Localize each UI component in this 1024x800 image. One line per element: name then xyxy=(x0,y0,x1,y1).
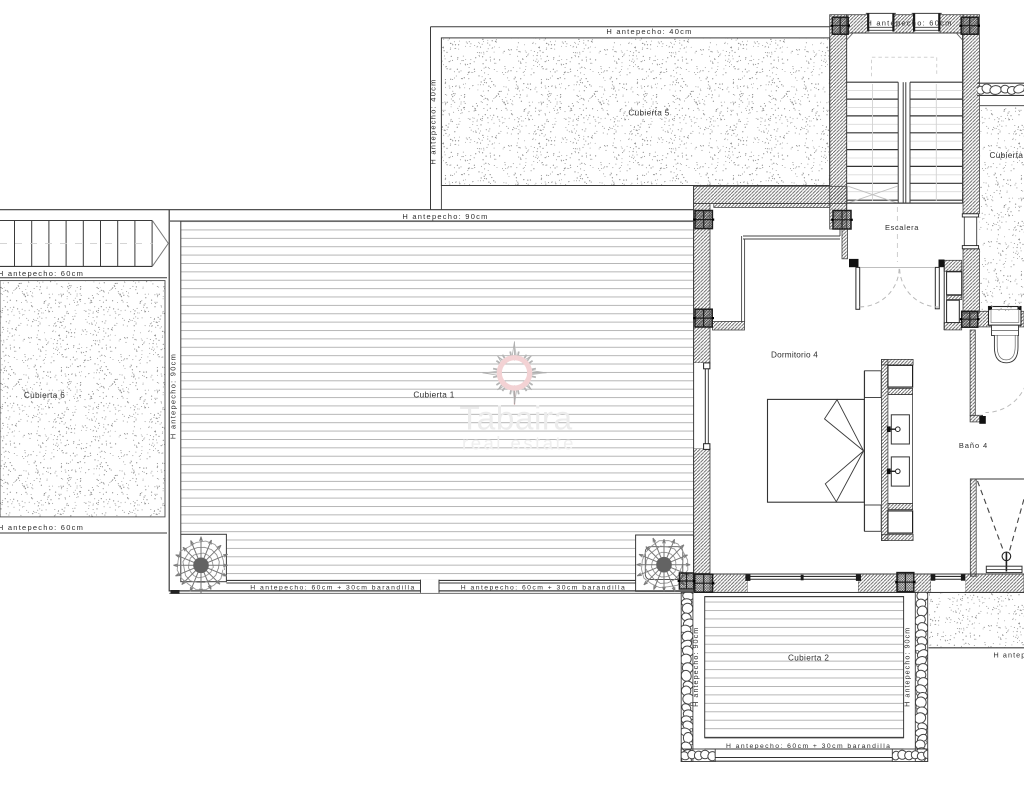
svg-text:H antepecho: 60cm + 30cm baran: H antepecho: 60cm + 30cm barandilla xyxy=(461,585,626,592)
svg-text:Cubierta 5: Cubierta 5 xyxy=(628,109,669,118)
svg-text:real estate: real estate xyxy=(462,433,576,454)
svg-text:H antepecho: 90cm: H antepecho: 90cm xyxy=(168,353,177,439)
svg-text:H antepecho: 60cm: H antepecho: 60cm xyxy=(0,523,84,532)
svg-text:H antepecho: 40cm: H antepecho: 40cm xyxy=(429,78,438,164)
svg-text:H antepecho: 90cm: H antepecho: 90cm xyxy=(902,627,911,707)
svg-text:Cubierta 1: Cubierta 1 xyxy=(413,391,454,400)
svg-text:H antepecho: 60cm + 30cm baran: H antepecho: 60cm + 30cm barandilla xyxy=(250,585,415,592)
svg-text:H antepecho: 60cm: H antepecho: 60cm xyxy=(0,269,84,278)
svg-text:Escalera: Escalera xyxy=(885,223,919,232)
svg-text:Baño 4: Baño 4 xyxy=(959,441,988,450)
svg-text:Cubierta 6: Cubierta 6 xyxy=(24,391,65,400)
svg-text:H antepecho: 40cm: H antepecho: 40cm xyxy=(606,27,692,36)
svg-text:H antepecho: 60cm: H antepecho: 60cm xyxy=(994,651,1024,660)
svg-text:H antepecho: 90cm: H antepecho: 90cm xyxy=(691,627,700,707)
svg-text:H antepecho: 60cm + 30cm baran: H antepecho: 60cm + 30cm barandilla xyxy=(726,743,891,750)
svg-text:Cubierta 2: Cubierta 2 xyxy=(788,654,829,663)
svg-text:H antepecho: 90cm: H antepecho: 90cm xyxy=(402,212,488,221)
svg-text:Cubierta 4: Cubierta 4 xyxy=(990,151,1024,160)
svg-text:Dormitorio 4: Dormitorio 4 xyxy=(771,350,818,359)
svg-text:H antepecho: 60cm: H antepecho: 60cm xyxy=(866,18,952,27)
